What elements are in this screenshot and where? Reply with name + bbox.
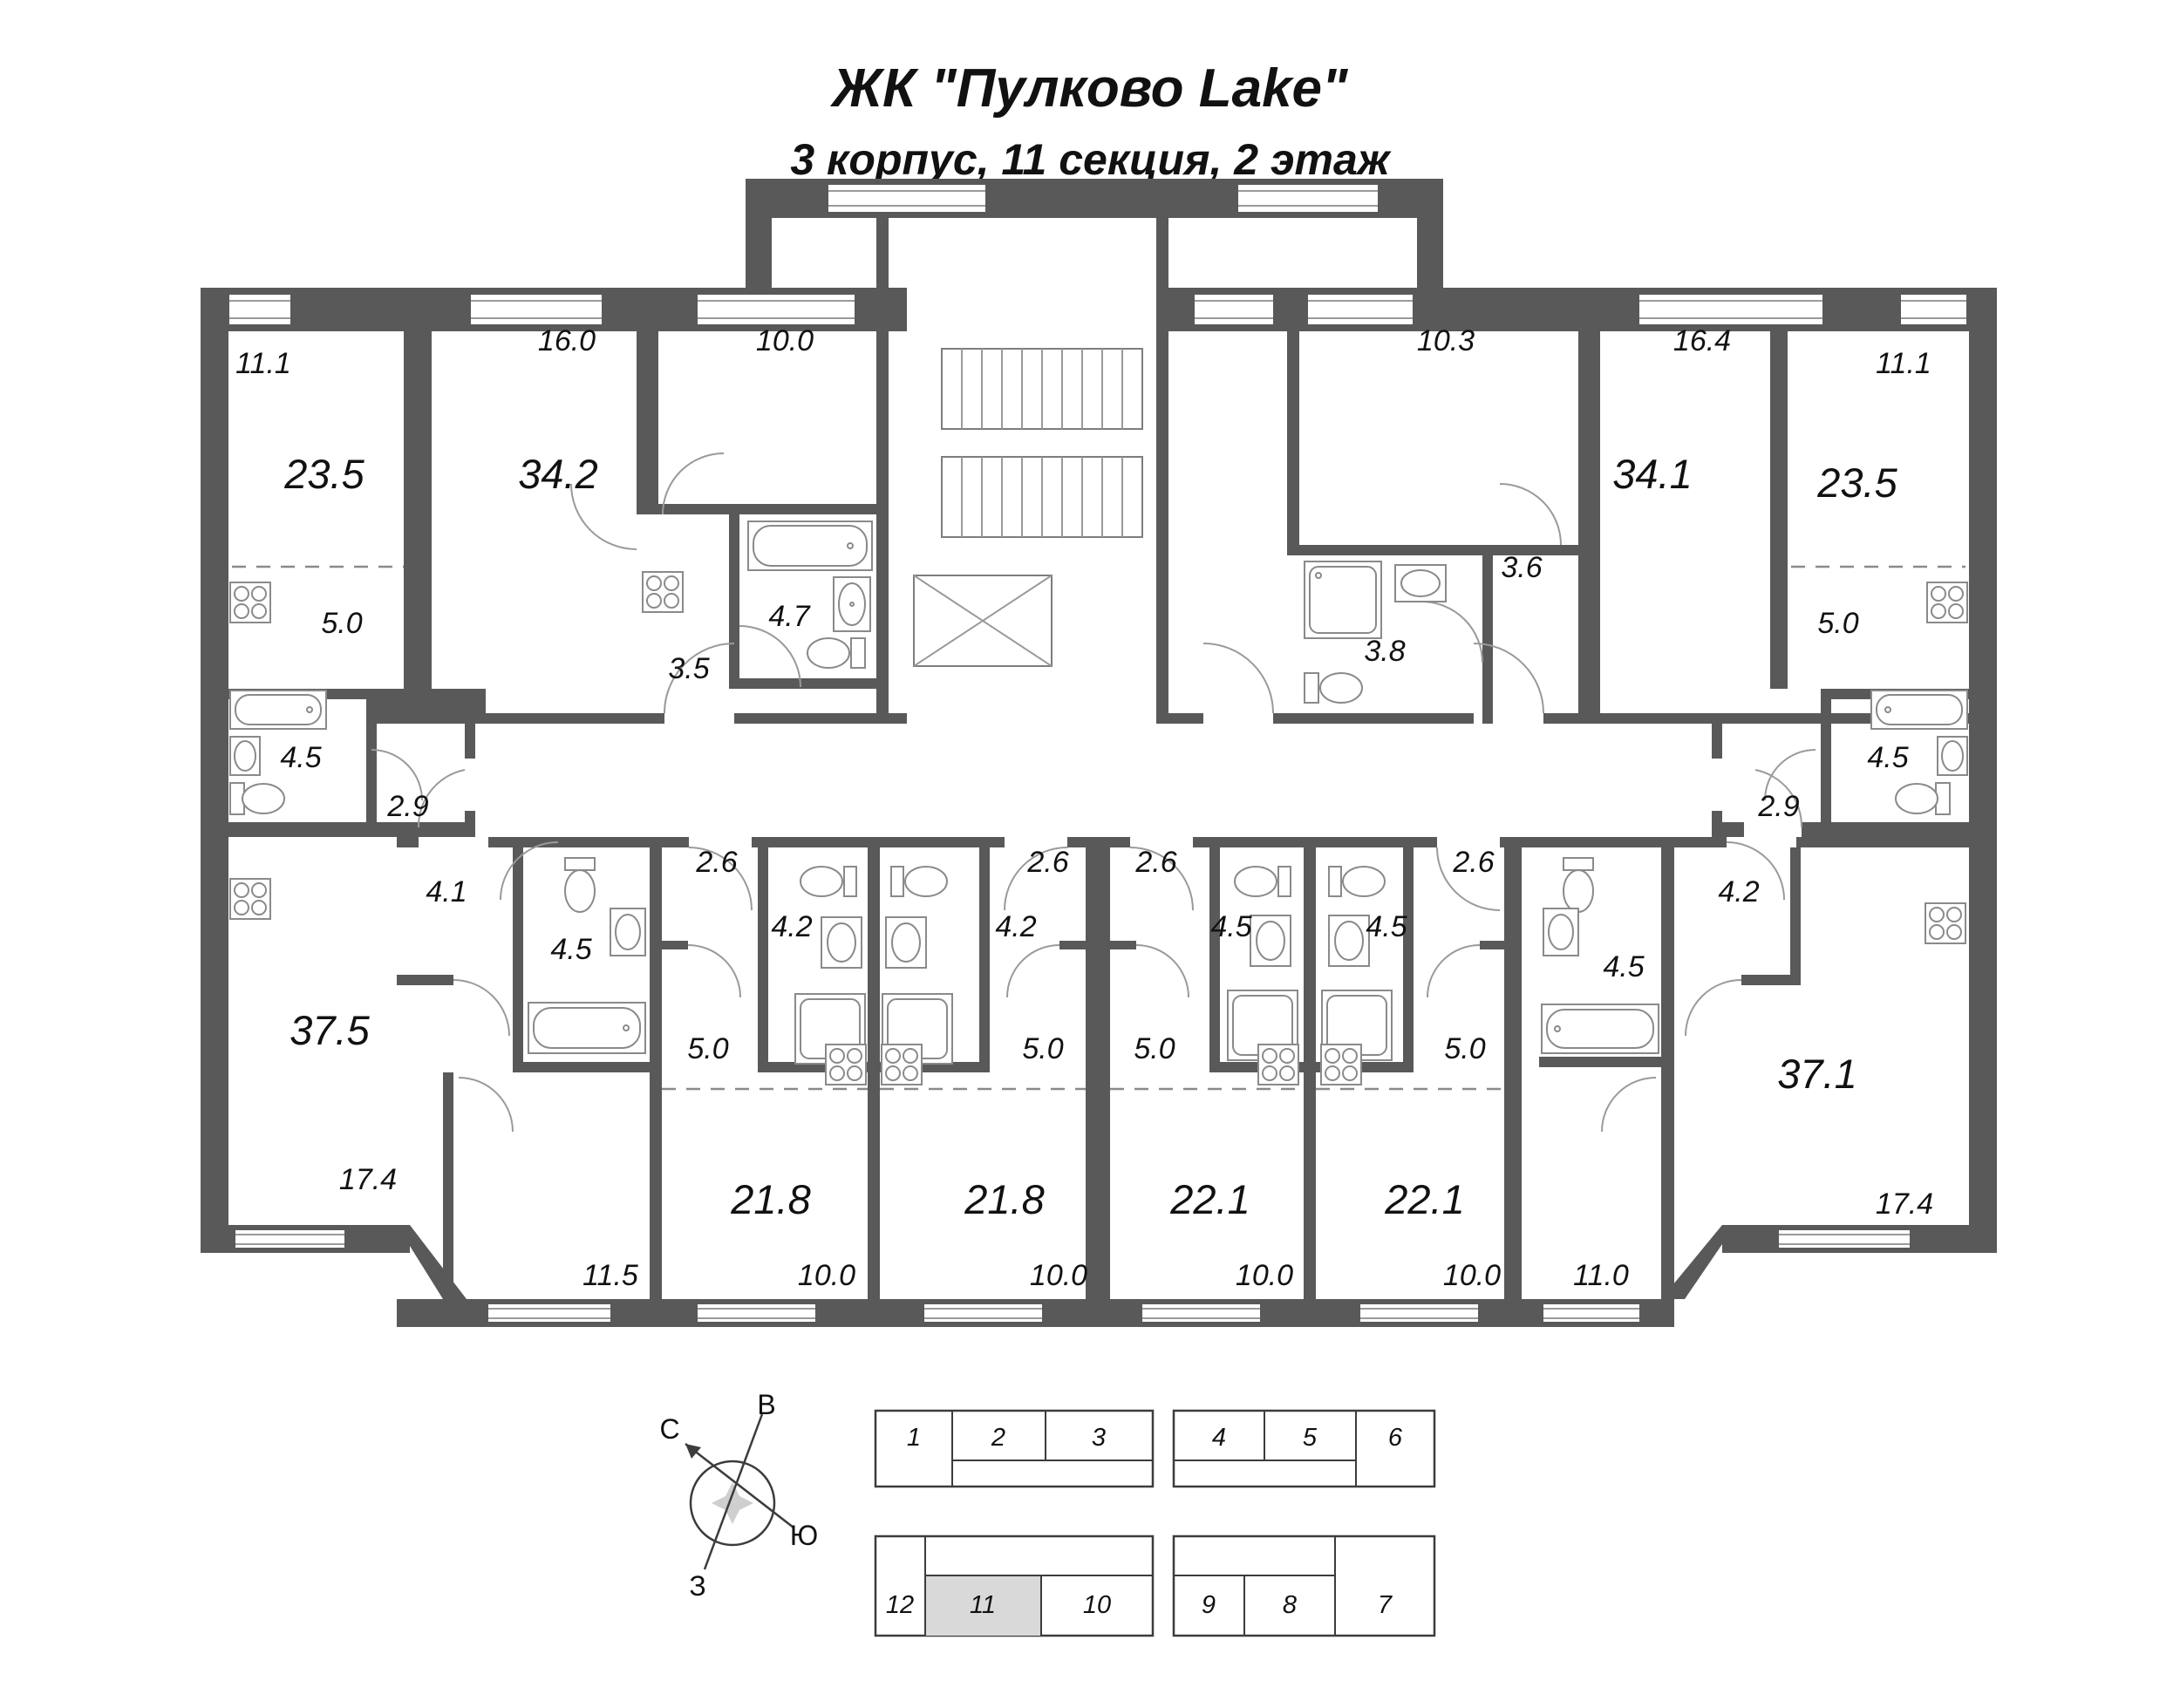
sink-symbol xyxy=(610,908,645,956)
compass-south-label: Ю xyxy=(790,1520,818,1551)
area-label: 5.0 xyxy=(1817,607,1858,640)
shower-symbol xyxy=(1305,561,1381,638)
window xyxy=(698,1304,815,1322)
sink-symbol xyxy=(834,577,870,631)
window xyxy=(1543,1304,1639,1322)
sink-symbol xyxy=(821,917,862,968)
area-label: 10.3 xyxy=(1417,324,1475,357)
door-arc xyxy=(1686,980,1741,1036)
window xyxy=(698,295,855,324)
area-label: 4.5 xyxy=(1603,950,1644,983)
stove-symbol xyxy=(826,1045,866,1085)
apartment-total-label: 22.1 xyxy=(1169,1176,1250,1222)
area-label: 10.0 xyxy=(798,1259,855,1292)
toilet-symbol xyxy=(1563,858,1593,912)
area-label: 2.6 xyxy=(695,846,737,879)
area-label: 3.8 xyxy=(1364,635,1405,668)
toilet-symbol xyxy=(230,783,284,814)
window xyxy=(1195,295,1273,324)
page-subtitle: 3 корпус, 11 секция, 2 этаж xyxy=(790,135,1391,184)
area-label: 17.4 xyxy=(1876,1187,1933,1221)
area-label: 10.0 xyxy=(756,324,814,357)
window xyxy=(828,185,985,212)
key-section-3: 3 xyxy=(1092,1424,1106,1452)
area-label: 5.0 xyxy=(1022,1032,1063,1065)
area-label: 4.5 xyxy=(280,741,321,774)
sink-symbol xyxy=(1395,565,1446,602)
key-section-12: 12 xyxy=(886,1591,914,1619)
window xyxy=(924,1304,1042,1322)
window xyxy=(1308,295,1413,324)
window xyxy=(1779,1230,1910,1248)
stove-symbol xyxy=(1258,1045,1298,1085)
apartment-total-label: 21.8 xyxy=(964,1176,1044,1222)
compass-north-arrow-icon xyxy=(685,1444,701,1459)
toilet-symbol xyxy=(1896,783,1950,814)
area-label: 4.2 xyxy=(1718,875,1759,908)
stove-symbol xyxy=(1925,903,1965,943)
elevator-shaft xyxy=(914,575,1052,666)
toilet-symbol xyxy=(1329,867,1385,896)
sink-symbol xyxy=(1543,908,1578,956)
sink-symbol xyxy=(1938,737,1967,775)
window xyxy=(1639,295,1822,324)
apartment-total-label: 23.5 xyxy=(1816,459,1897,506)
key-plan: 1 2 3 4 5 6 12 11 10 9 8 7 xyxy=(875,1411,1434,1636)
area-label: 4.5 xyxy=(550,933,591,966)
page-title: ЖК "Пулково Lake" xyxy=(830,58,1349,119)
area-label: 4.5 xyxy=(1366,910,1407,943)
compass-west-label: З xyxy=(689,1570,705,1602)
compass-north-label: С xyxy=(659,1413,679,1445)
area-label: 10.0 xyxy=(1236,1259,1293,1292)
area-label: 5.0 xyxy=(1444,1032,1485,1065)
door-arc xyxy=(739,626,800,687)
area-label: 3.5 xyxy=(668,652,709,685)
compass-rose: В С Ю З xyxy=(659,1389,818,1602)
area-label: 4.5 xyxy=(1210,910,1251,943)
area-label: 10.0 xyxy=(1443,1259,1501,1292)
sink-symbol xyxy=(230,737,260,775)
sink-symbol xyxy=(1250,915,1291,966)
door-arc xyxy=(1427,945,1480,997)
door-arc xyxy=(1136,945,1189,997)
stove-symbol xyxy=(643,572,683,612)
door-arc xyxy=(1421,602,1482,663)
bathtub-symbol xyxy=(748,521,872,570)
door-arc xyxy=(1602,1078,1656,1132)
area-label: 11.1 xyxy=(235,347,291,380)
key-section-6: 6 xyxy=(1388,1424,1403,1452)
area-label: 5.0 xyxy=(1134,1032,1175,1065)
stove-symbol xyxy=(1927,582,1967,623)
area-label: 5.0 xyxy=(321,607,362,640)
area-label: 11.1 xyxy=(1876,347,1931,380)
door-arc xyxy=(1500,484,1561,545)
area-label: 2.9 xyxy=(1757,790,1799,823)
window xyxy=(229,295,290,324)
area-label: 2.6 xyxy=(1134,846,1176,879)
area-label: 2.6 xyxy=(1026,846,1068,879)
toilet-symbol xyxy=(1305,673,1362,703)
area-label: 3.6 xyxy=(1501,551,1542,584)
door-arc xyxy=(453,980,509,1036)
stove-symbol xyxy=(230,582,270,623)
area-label: 4.2 xyxy=(995,910,1036,943)
area-label: 16.4 xyxy=(1673,324,1731,357)
stove-symbol xyxy=(230,879,270,919)
window xyxy=(1142,1304,1260,1322)
area-label: 11.5 xyxy=(582,1259,638,1292)
area-label: 4.7 xyxy=(768,600,810,633)
floor-plan-canvas: ЖК "Пулково Lake" 3 корпус, 11 секция, 2… xyxy=(0,0,2180,1708)
apartment-total-label: 34.2 xyxy=(518,451,597,497)
window xyxy=(1901,295,1966,324)
key-section-10: 10 xyxy=(1083,1591,1111,1619)
toilet-symbol xyxy=(565,858,595,912)
bathtub-symbol xyxy=(1542,1004,1659,1053)
stove-symbol xyxy=(882,1045,922,1085)
sink-symbol xyxy=(886,917,926,968)
apartment-total-label: 37.1 xyxy=(1777,1051,1856,1097)
door-arc xyxy=(688,945,740,997)
window xyxy=(488,1304,610,1322)
key-plan-block xyxy=(1174,1536,1434,1636)
key-section-11: 11 xyxy=(970,1591,996,1619)
apartment-total-label: 34.1 xyxy=(1612,451,1692,497)
door-arc xyxy=(501,842,558,900)
apartment-total-label: 21.8 xyxy=(730,1176,810,1222)
apartment-total-label: 22.1 xyxy=(1384,1176,1464,1222)
bathtub-symbol xyxy=(528,1003,645,1053)
door-arc xyxy=(1203,643,1273,713)
stove-symbol xyxy=(1321,1045,1361,1085)
bathtub-symbol xyxy=(230,691,326,729)
toilet-symbol xyxy=(891,867,947,896)
key-section-2: 2 xyxy=(991,1424,1005,1452)
door-arc xyxy=(459,1078,513,1132)
compass-east-label: В xyxy=(757,1389,775,1420)
area-label: 10.0 xyxy=(1030,1259,1087,1292)
window xyxy=(1238,185,1378,212)
area-label: 2.6 xyxy=(1452,846,1494,879)
key-section-4: 4 xyxy=(1212,1424,1226,1452)
key-section-1: 1 xyxy=(907,1424,921,1452)
key-section-9: 9 xyxy=(1202,1591,1216,1619)
toilet-symbol xyxy=(800,867,856,896)
key-section-5: 5 xyxy=(1303,1424,1318,1452)
area-label: 2.9 xyxy=(386,790,428,823)
toilet-symbol xyxy=(807,638,865,668)
toilet-symbol xyxy=(1235,867,1291,896)
area-label: 4.2 xyxy=(771,910,812,943)
area-label: 11.0 xyxy=(1573,1259,1629,1292)
window xyxy=(1360,1304,1478,1322)
area-label: 5.0 xyxy=(687,1032,728,1065)
door-arc xyxy=(1007,945,1059,997)
floor-plan-page: ЖК "Пулково Lake" 3 корпус, 11 секция, 2… xyxy=(0,0,2180,1708)
apartment-total-label: 23.5 xyxy=(283,451,364,497)
bathtub-symbol xyxy=(1871,691,1967,729)
window xyxy=(471,295,602,324)
sink-symbol xyxy=(1329,915,1369,966)
key-section-7: 7 xyxy=(1378,1591,1393,1619)
area-label: 4.1 xyxy=(426,875,467,908)
window xyxy=(235,1230,344,1248)
key-section-8: 8 xyxy=(1283,1591,1297,1619)
staircase xyxy=(942,349,1142,537)
apartment-total-label: 37.5 xyxy=(290,1007,370,1053)
area-label: 17.4 xyxy=(339,1163,397,1196)
area-label: 4.5 xyxy=(1867,741,1908,774)
area-label: 16.0 xyxy=(538,324,596,357)
